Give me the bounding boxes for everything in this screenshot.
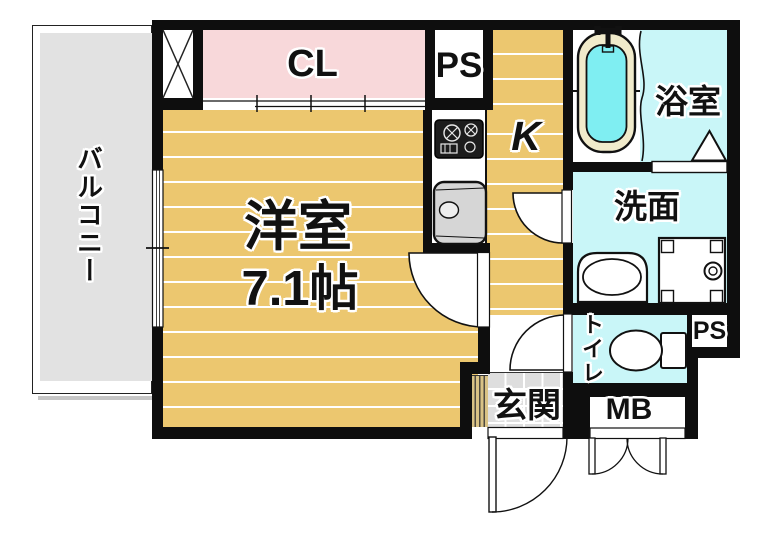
bathroom-label: 浴室 <box>640 78 736 120</box>
wall-ps-bottom <box>425 98 493 110</box>
toilet-label: トイレ <box>577 309 605 389</box>
meter-box-doors-swing <box>589 428 685 474</box>
wall-column-bottom <box>163 98 193 110</box>
wall-bath-left <box>563 30 573 162</box>
balcony-label: バルコニー <box>72 136 106 294</box>
entrance-step <box>470 375 488 427</box>
washroom-label: 洗面 <box>599 183 695 225</box>
wall-counter-left <box>423 110 432 243</box>
wall-column-right <box>193 30 203 110</box>
closet-label: CL <box>270 40 355 88</box>
pipe-space-top-label: PS <box>432 44 486 88</box>
wall-counter-stub <box>423 243 490 253</box>
floor-plan: バルコニー <box>0 0 766 535</box>
wall-mb-bottom-stub <box>563 428 590 439</box>
kitchen-counter <box>431 110 487 243</box>
wall-bottom-room <box>152 427 472 439</box>
kitchen-label: K <box>499 112 553 160</box>
wall-bath-bottom <box>563 162 652 172</box>
wall-entrance-left <box>460 374 472 439</box>
vestibule-floor <box>488 315 563 372</box>
entrance-label: 玄関 <box>489 381 565 423</box>
room-name-label: 洋室 <box>202 190 394 252</box>
column-box <box>163 30 193 98</box>
meter-box-label: MB <box>597 393 661 427</box>
bathroom-tub-alcove <box>573 30 643 162</box>
front-door-swing <box>488 428 567 513</box>
room-size-label: 7.1帖 <box>202 254 398 314</box>
wall-left-upper <box>152 20 163 170</box>
wall-left-lower <box>152 327 163 439</box>
wall-entrance-stub <box>460 362 490 374</box>
wall-top <box>152 20 740 30</box>
kitchen-floor-upper <box>493 30 563 110</box>
balcony-shadow <box>38 396 155 400</box>
pipe-space-bottom-label: PS <box>687 316 732 346</box>
closet-sliding-track <box>203 98 425 110</box>
wall-washroom-left-a <box>563 172 573 190</box>
wall-room-right <box>478 327 490 362</box>
wall-mb-left <box>563 397 590 428</box>
wall-right-lower <box>687 358 698 439</box>
